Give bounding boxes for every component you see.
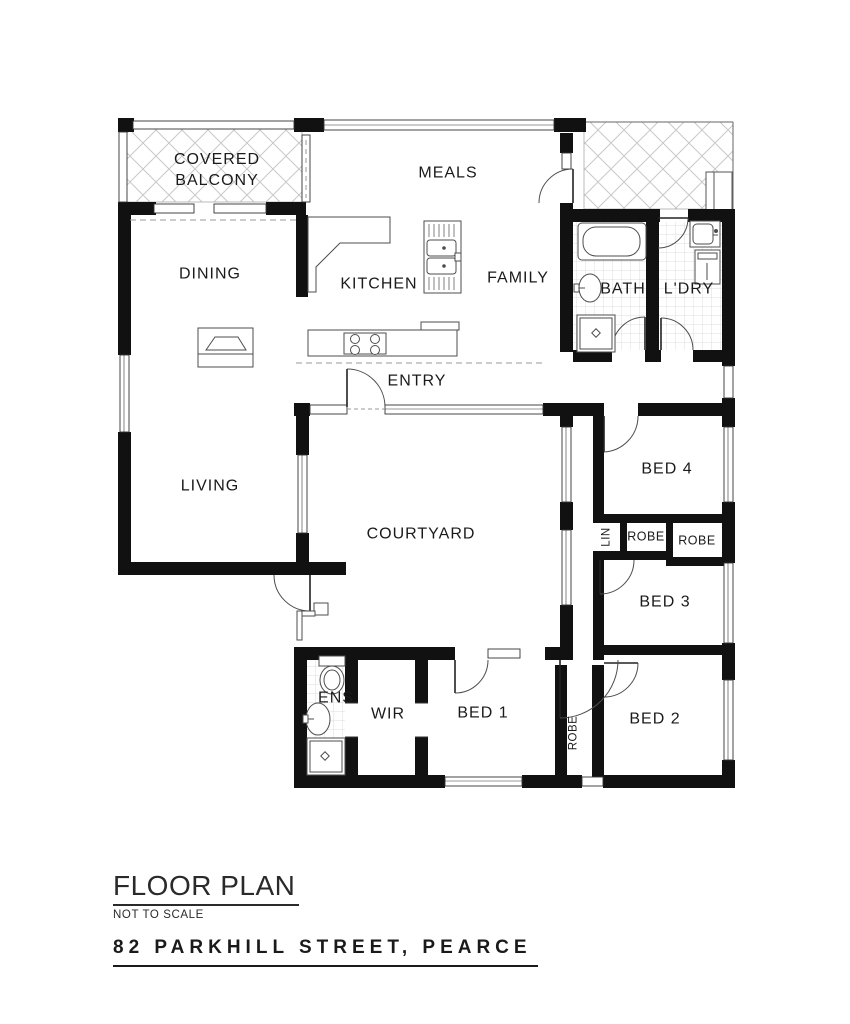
entry-door — [347, 369, 385, 407]
label-meals: MEALS — [418, 163, 477, 184]
fireplace — [198, 328, 253, 367]
bath-shower — [577, 315, 615, 352]
label-covered-balcony: COVEREDBALCONY — [174, 149, 260, 191]
label-bed2: BED 2 — [629, 709, 680, 730]
label-robe-bed4: ROBE — [627, 527, 664, 548]
label-bed3: BED 3 — [639, 592, 690, 613]
label-courtyard: COURTYARD — [367, 524, 476, 545]
label-robe-bed1: ROBE — [564, 716, 585, 751]
living-rear-door — [274, 575, 310, 611]
kitchen-island-sink — [424, 221, 461, 293]
rear-patio-hatch — [584, 122, 733, 213]
laundry-tub — [690, 221, 720, 247]
scale-note: NOT TO SCALE — [113, 909, 538, 921]
label-kitchen: KITCHEN — [340, 274, 417, 295]
kitchen-cooktop-bench — [308, 322, 459, 356]
label-bed4: BED 4 — [641, 459, 692, 480]
outdoor-tap — [297, 603, 328, 640]
label-robe-bed3: ROBE — [678, 531, 715, 552]
floor-plan-page: COVEREDBALCONY MEALS DINING KITCHEN FAMI… — [0, 0, 850, 1024]
bed3-door — [600, 560, 634, 594]
title-block: FLOOR PLAN NOT TO SCALE 82 PARKHILL STRE… — [113, 870, 538, 967]
label-bed1: BED 1 — [457, 703, 508, 724]
bathtub — [578, 223, 646, 260]
label-linen: LIN — [597, 527, 618, 546]
bed1-hall-door — [560, 660, 618, 718]
label-dining: DINING — [179, 264, 241, 285]
walls — [118, 118, 735, 788]
label-entry: ENTRY — [388, 371, 447, 392]
hot-water-unit — [706, 172, 732, 213]
address-line: 82 PARKHILL STREET, PEARCE — [113, 937, 538, 967]
meals-patio-door — [539, 169, 573, 203]
label-ens: ENS — [318, 688, 354, 709]
bed1-courtyard-door — [455, 660, 488, 693]
ens-shower — [307, 738, 345, 775]
bed4-door — [604, 416, 638, 452]
label-family: FAMILY — [487, 268, 549, 289]
label-laundry: L'DRY — [664, 279, 714, 300]
label-living: LIVING — [181, 476, 239, 497]
label-wir: WIR — [371, 704, 405, 725]
tiled-floors — [307, 222, 722, 777]
page-title: FLOOR PLAN — [113, 870, 299, 906]
label-bath: BATH — [600, 279, 645, 300]
